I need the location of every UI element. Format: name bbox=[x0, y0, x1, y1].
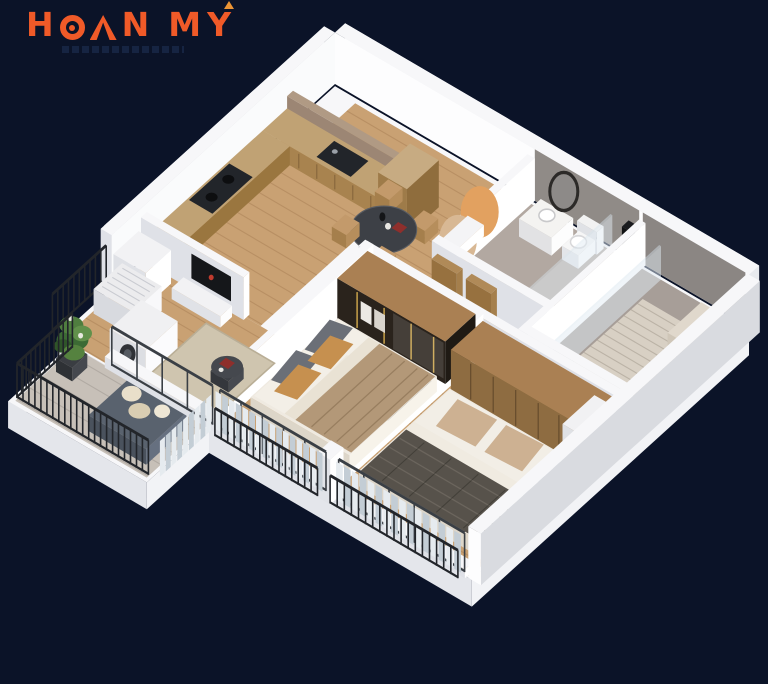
page-background: { "logo": { "text": "HOAN MY", "h": "H",… bbox=[0, 0, 768, 684]
logo-letter-m: M bbox=[168, 8, 202, 41]
logo: H N M Y bbox=[26, 8, 232, 53]
logo-letter-n: N bbox=[122, 8, 151, 41]
logo-letter-a-triangle-icon bbox=[90, 15, 117, 40]
logo-tagline bbox=[62, 46, 184, 53]
logo-letter-h: H bbox=[26, 8, 55, 41]
logo-letter-y: Y bbox=[207, 8, 232, 41]
apartment-3d-render bbox=[0, 0, 768, 684]
logo-wordmark: H N M Y bbox=[26, 8, 232, 41]
o-center-dot bbox=[69, 25, 75, 31]
logo-letter-o-icon bbox=[60, 15, 85, 40]
floor-plan-scene bbox=[0, 0, 768, 684]
